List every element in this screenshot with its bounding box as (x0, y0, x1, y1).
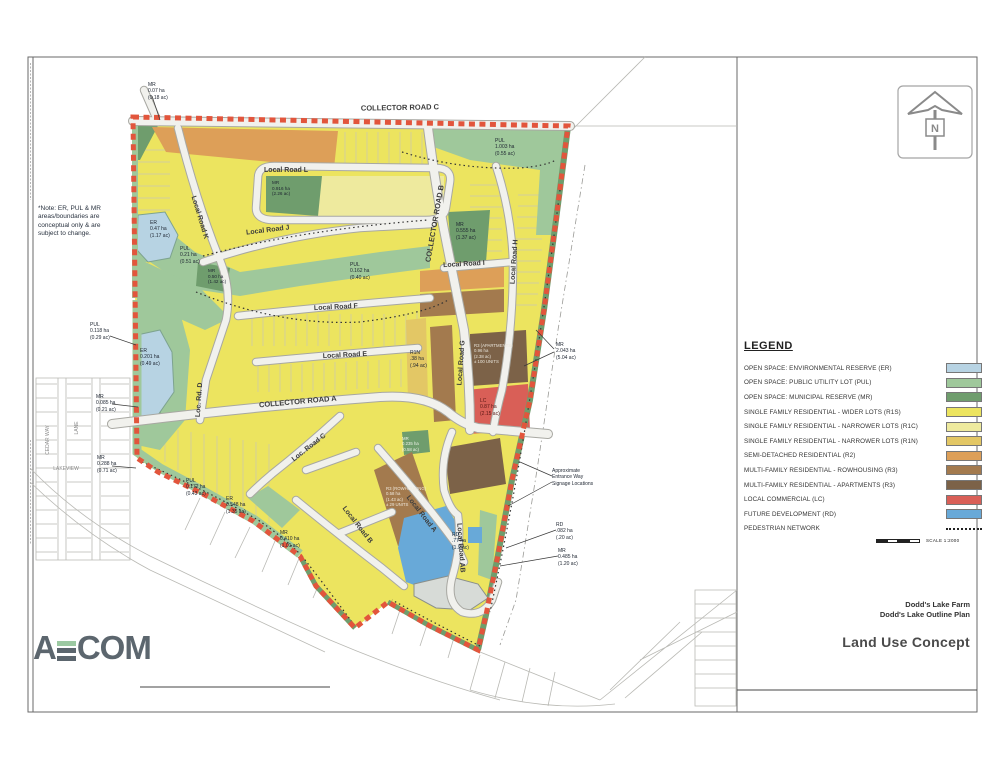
legend-label: FUTURE DEVELOPMENT (RD) (744, 511, 836, 518)
area-label: PUL 0.172 ha (0.43 ac) (186, 478, 206, 497)
area-label: R3 (ROWHOUSING) 0.58 ha (1.43 ac) ± 29 U… (386, 486, 426, 507)
area-label: RD .082 ha (.20 ac) (556, 522, 573, 541)
r3-apartments-south-block (444, 438, 506, 494)
rd-small-block (468, 527, 482, 543)
legend-item-r1s: SINGLE FAMILY RESIDENTIAL - WIDER LOTS (… (744, 405, 982, 420)
plan-note: *Note: ER, PUL & MR areas/boundaries are… (38, 205, 134, 239)
context-label-lakeview: LAKEVIEW (53, 466, 79, 472)
area-label: ER 0.201 ha (0.49 ac) (140, 348, 160, 367)
legend-item-er: OPEN SPACE: ENVIRONMENTAL RESERVE (ER) (744, 361, 982, 376)
area-label: ER 0.548 ha (1.35 ac) (226, 496, 246, 515)
legend-item-mr: OPEN SPACE: MUNICIPAL RESERVE (MR) (744, 390, 982, 405)
legend-swatch-er (946, 363, 982, 373)
area-label: MR 0.50 ha (1.42 ac) (208, 268, 226, 285)
legend-label: OPEN SPACE: ENVIRONMENTAL RESERVE (ER) (744, 365, 892, 372)
area-label: MR 0.07 ha (0.18 ac) (148, 82, 168, 101)
title-block-rules (140, 687, 977, 690)
legend-swatch-r1n (946, 436, 982, 446)
logo-letter-a: A (33, 634, 56, 662)
area-label: PUL 0.118 ha (0.29 ac) (90, 322, 110, 341)
legend-swatch-mr (946, 392, 982, 402)
legend-swatch-r3-rowhousing (946, 465, 982, 475)
area-label: MR 0.410 ha (1.01 ac) (280, 530, 300, 549)
context-label-cedar-way: CEDAR WAY (45, 424, 51, 454)
area-label: R3 (APARTMENTS) 0.96 ha (2.38 ac) ± 100 … (474, 343, 513, 364)
scale-bar-label: SCALE 1:2000 (926, 538, 959, 543)
context-label-lane: LANE (74, 421, 80, 435)
area-label: MR 0.085 ha (0.21 ac) (96, 394, 116, 413)
title-block: Dodd's Lake Farm Dodd's Lake Outline Pla… (737, 600, 970, 650)
legend-swatch-r3-apartments (946, 480, 982, 490)
legend-label: SINGLE FAMILY RESIDENTIAL - WIDER LOTS (… (744, 409, 901, 416)
legend-title: LEGEND (744, 340, 982, 352)
legend-swatch-lc (946, 495, 982, 505)
legend-item-pedestrian: PEDESTRIAN NETWORK (744, 522, 982, 537)
legend-item-r1n: SINGLE FAMILY RESIDENTIAL - NARROWER LOT… (744, 434, 982, 449)
legend-label: PEDESTRIAN NETWORK (744, 525, 820, 532)
aecom-logo: A COM (33, 634, 151, 662)
legend-label: SEMI-DETACHED RESIDENTIAL (R2) (744, 452, 855, 459)
legend-item-r3-rowhousing: MULTI-FAMILY RESIDENTIAL - ROWHOUSING (R… (744, 463, 982, 478)
scale-bar-segment (887, 539, 898, 543)
scale-bar-segment (876, 539, 887, 543)
legend-swatch-pul (946, 378, 982, 388)
legend-item-r2: SEMI-DETACHED RESIDENTIAL (R2) (744, 449, 982, 464)
project-name: Dodd's Lake Farm (737, 600, 970, 610)
legend-item-lc: LOCAL COMMERCIAL (LC) (744, 492, 982, 507)
legend-swatch-pedestrian-dots (946, 527, 982, 530)
legend-item-r3-apartments: MULTI-FAMILY RESIDENTIAL - APARTMENTS (R… (744, 478, 982, 493)
legend-label: SINGLE FAMILY RESIDENTIAL - NARROWER LOT… (744, 423, 918, 430)
area-label: RD .77 ha (1.9 ac) (452, 532, 469, 551)
area-label: Approximate Entrance Way Signage Locatio… (552, 468, 593, 487)
scale-bar: SCALE 1:2000 (876, 538, 959, 543)
plan-name: Dodd's Lake Outline Plan (737, 610, 970, 620)
area-label: PUL 0.162 ha (0.40 ac) (350, 262, 370, 281)
area-label: PUL 1.003 ha (0.55 ac) (495, 138, 515, 157)
area-label: MR 2.043 ha (5.04 ac) (556, 342, 576, 361)
legend: LEGEND OPEN SPACE: ENVIRONMENTAL RESERVE… (744, 340, 982, 536)
north-arrow-label: N (931, 123, 939, 135)
legend-item-rd: FUTURE DEVELOPMENT (RD) (744, 507, 982, 522)
legend-item-r1c: SINGLE FAMILY RESIDENTIAL - NARROWER LOT… (744, 419, 982, 434)
area-label: R1N .38 ha (.94 ac) (410, 350, 427, 369)
legend-label: SINGLE FAMILY RESIDENTIAL - NARROWER LOT… (744, 438, 918, 445)
legend-label: MULTI-FAMILY RESIDENTIAL - APARTMENTS (R… (744, 482, 895, 489)
legend-item-pul: OPEN SPACE: PUBLIC UTILITY LOT (PUL) (744, 376, 982, 391)
area-label: MR 0.485 ha (1.20 ac) (558, 548, 578, 567)
area-label: MR 0.555 ha (1.37 ac) (456, 222, 476, 241)
legend-swatch-r1c (946, 422, 982, 432)
logo-letters-com: COM (77, 634, 151, 662)
area-label: MR 0.916 ha (2.26 ac) (272, 180, 290, 197)
r1c-loop-block (318, 176, 444, 218)
legend-label: LOCAL COMMERCIAL (LC) (744, 496, 825, 503)
area-label: LC 0.87 ha (2.15 ac) (480, 398, 500, 417)
area-label: MR 0.235 ha (0.58 ac) (402, 436, 419, 452)
plan-sheet: COLLECTOR ROAD C Local Road L Local Road… (0, 0, 993, 768)
area-label: ER 0.47 ha (1.17 ac) (150, 220, 170, 239)
logo-e-bars-icon (57, 637, 76, 662)
road-label-local-l: Local Road L (264, 167, 309, 174)
legend-label: MULTI-FAMILY RESIDENTIAL - ROWHOUSING (R… (744, 467, 898, 474)
legend-label: OPEN SPACE: MUNICIPAL RESERVE (MR) (744, 394, 872, 401)
legend-swatch-rd (946, 509, 982, 519)
scale-bar-segment (898, 539, 909, 543)
legend-label: OPEN SPACE: PUBLIC UTILITY LOT (PUL) (744, 379, 871, 386)
sheet-title: Land Use Concept (737, 634, 970, 650)
scale-bar-segment (909, 539, 920, 543)
road-label-collector-c: COLLECTOR ROAD C (361, 102, 440, 112)
area-label: MR 0.288 ha (0.71 ac) (97, 455, 117, 474)
legend-swatch-r1s (946, 407, 982, 417)
area-label: PUL 0.21 ha (0.51 ac) (180, 246, 200, 265)
north-arrow: N (898, 86, 972, 158)
legend-swatch-r2 (946, 451, 982, 461)
